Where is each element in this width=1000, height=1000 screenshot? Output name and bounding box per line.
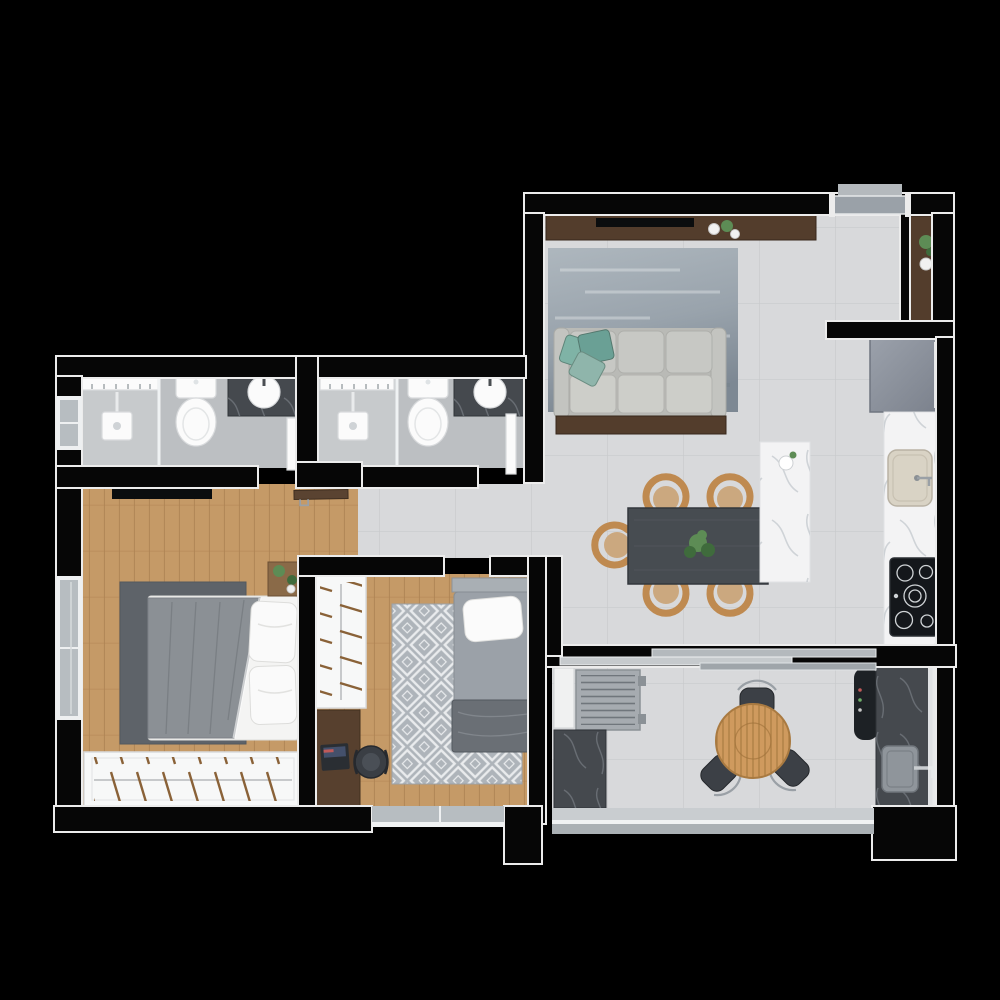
console-behind-sofa <box>556 416 726 434</box>
bedroom2-window <box>372 806 504 824</box>
wall-bath1-bottom <box>56 466 258 488</box>
entry-decor-pot <box>920 258 932 270</box>
open-wardrobe <box>316 576 366 708</box>
grill-knob <box>858 688 862 692</box>
wall-bath-top <box>56 356 526 378</box>
grill-knob <box>858 708 862 712</box>
grill <box>854 668 878 740</box>
bedroom-2 <box>316 576 534 806</box>
ac-condenser-unit <box>576 670 646 730</box>
decor-vase <box>731 230 740 239</box>
refrigerator <box>870 338 940 412</box>
entry-step <box>838 184 902 196</box>
decor-bowl <box>709 224 720 235</box>
wall-living-left <box>524 213 544 483</box>
entry-door-jamb <box>905 193 911 217</box>
sofa-seat-cushion <box>666 375 712 413</box>
wall-right-upper <box>932 213 954 335</box>
entry-door-jamb <box>829 193 835 217</box>
pillow-stack <box>248 601 297 663</box>
laptop <box>320 743 350 771</box>
apartment-floor-plan <box>0 0 1000 1000</box>
nightstand-pot <box>287 585 295 593</box>
railing-shadow <box>552 824 874 834</box>
sofa <box>554 328 726 434</box>
flower-vase <box>779 456 793 470</box>
desk-chair <box>355 746 388 778</box>
wall-master-right <box>298 556 316 824</box>
wall-corner-bottom-right <box>872 806 956 860</box>
blanket-chest <box>452 700 534 752</box>
double-bed <box>148 592 306 740</box>
wardrobe-hangers <box>94 757 292 801</box>
vase-flower <box>790 452 797 459</box>
entry-door <box>834 196 908 214</box>
pillow <box>462 596 523 643</box>
single-bed <box>452 578 534 752</box>
wardrobe-hangers <box>320 582 362 702</box>
sofa-seat-cushion <box>618 375 664 413</box>
wall-tv <box>112 488 212 499</box>
sliding-door-panel <box>700 663 876 670</box>
wall-bedroom2-right <box>528 556 546 824</box>
bathroom2-door <box>506 414 516 474</box>
headboard <box>452 578 534 592</box>
entry-plant <box>919 235 933 249</box>
railing-top-rail <box>552 820 874 824</box>
cooktop-control <box>894 594 898 598</box>
toilet <box>408 372 448 446</box>
wall-entry-niche <box>900 213 910 323</box>
pillow-stack <box>249 665 297 725</box>
nightstand-plant <box>287 575 297 585</box>
open-wardrobe <box>84 752 302 806</box>
hallway-floor <box>352 484 548 558</box>
sliding-door-panel <box>652 649 876 657</box>
tv <box>596 218 694 227</box>
shower-knob <box>349 422 357 430</box>
wall-right-balcony <box>936 645 954 817</box>
sofa-arm-right <box>711 328 726 418</box>
toilet <box>176 372 216 446</box>
grill-knob <box>858 698 862 702</box>
sofa-back-cushion <box>618 331 664 373</box>
cooktop <box>890 558 938 636</box>
counter-veins <box>554 730 606 808</box>
wall-inner-horizontal <box>826 321 954 339</box>
wall-bedroom2-top-left <box>298 556 444 576</box>
wall-master-door-head <box>296 462 362 488</box>
nightstand-plant <box>273 565 285 577</box>
sofa-back-cushion <box>666 331 712 373</box>
wall-right-kitchen <box>936 337 954 651</box>
console-plant-icon <box>721 220 733 232</box>
table-slats <box>716 704 790 778</box>
floor-plan-canvas <box>0 0 1000 1000</box>
glass-railing <box>552 808 874 822</box>
shower-knob <box>113 422 121 430</box>
bedroom2-window-sill <box>372 822 504 827</box>
wall-stub-bottom <box>504 806 542 864</box>
wall-master-bottom <box>54 806 372 832</box>
service-cabinet <box>554 668 574 728</box>
master-bedroom-door <box>294 490 348 500</box>
